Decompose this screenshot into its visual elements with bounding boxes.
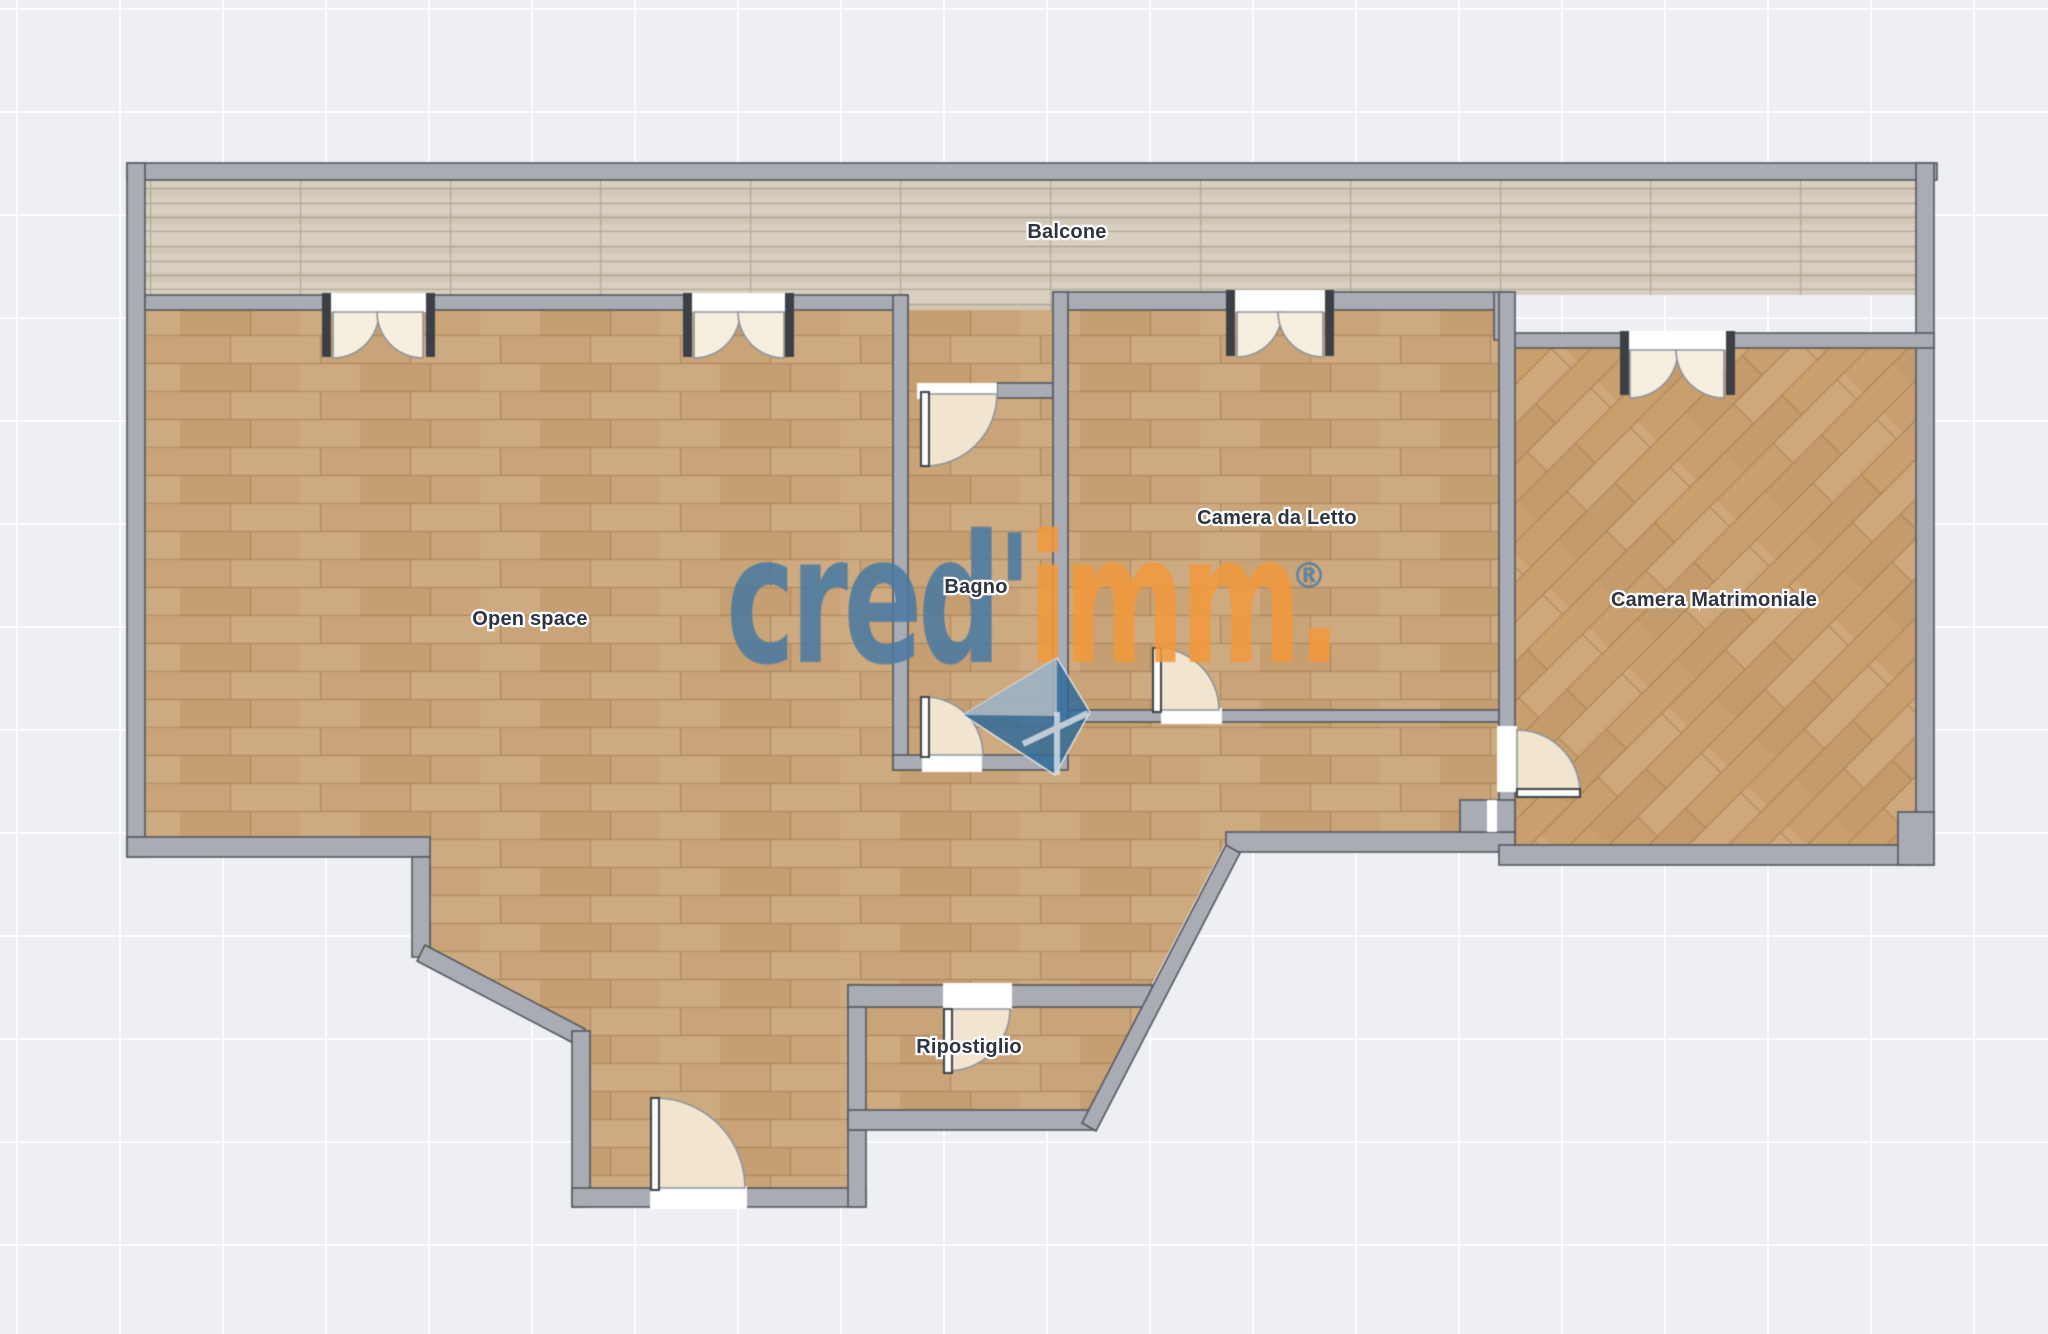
registered-trademark-icon: ®: [1291, 556, 1327, 597]
balcony-floor: [145, 180, 1916, 295]
brand-cube-icon: [955, 650, 1095, 780]
floorplan-page: cred'imm. ® Balcone Open space Bagno Cam…: [0, 0, 2048, 1334]
